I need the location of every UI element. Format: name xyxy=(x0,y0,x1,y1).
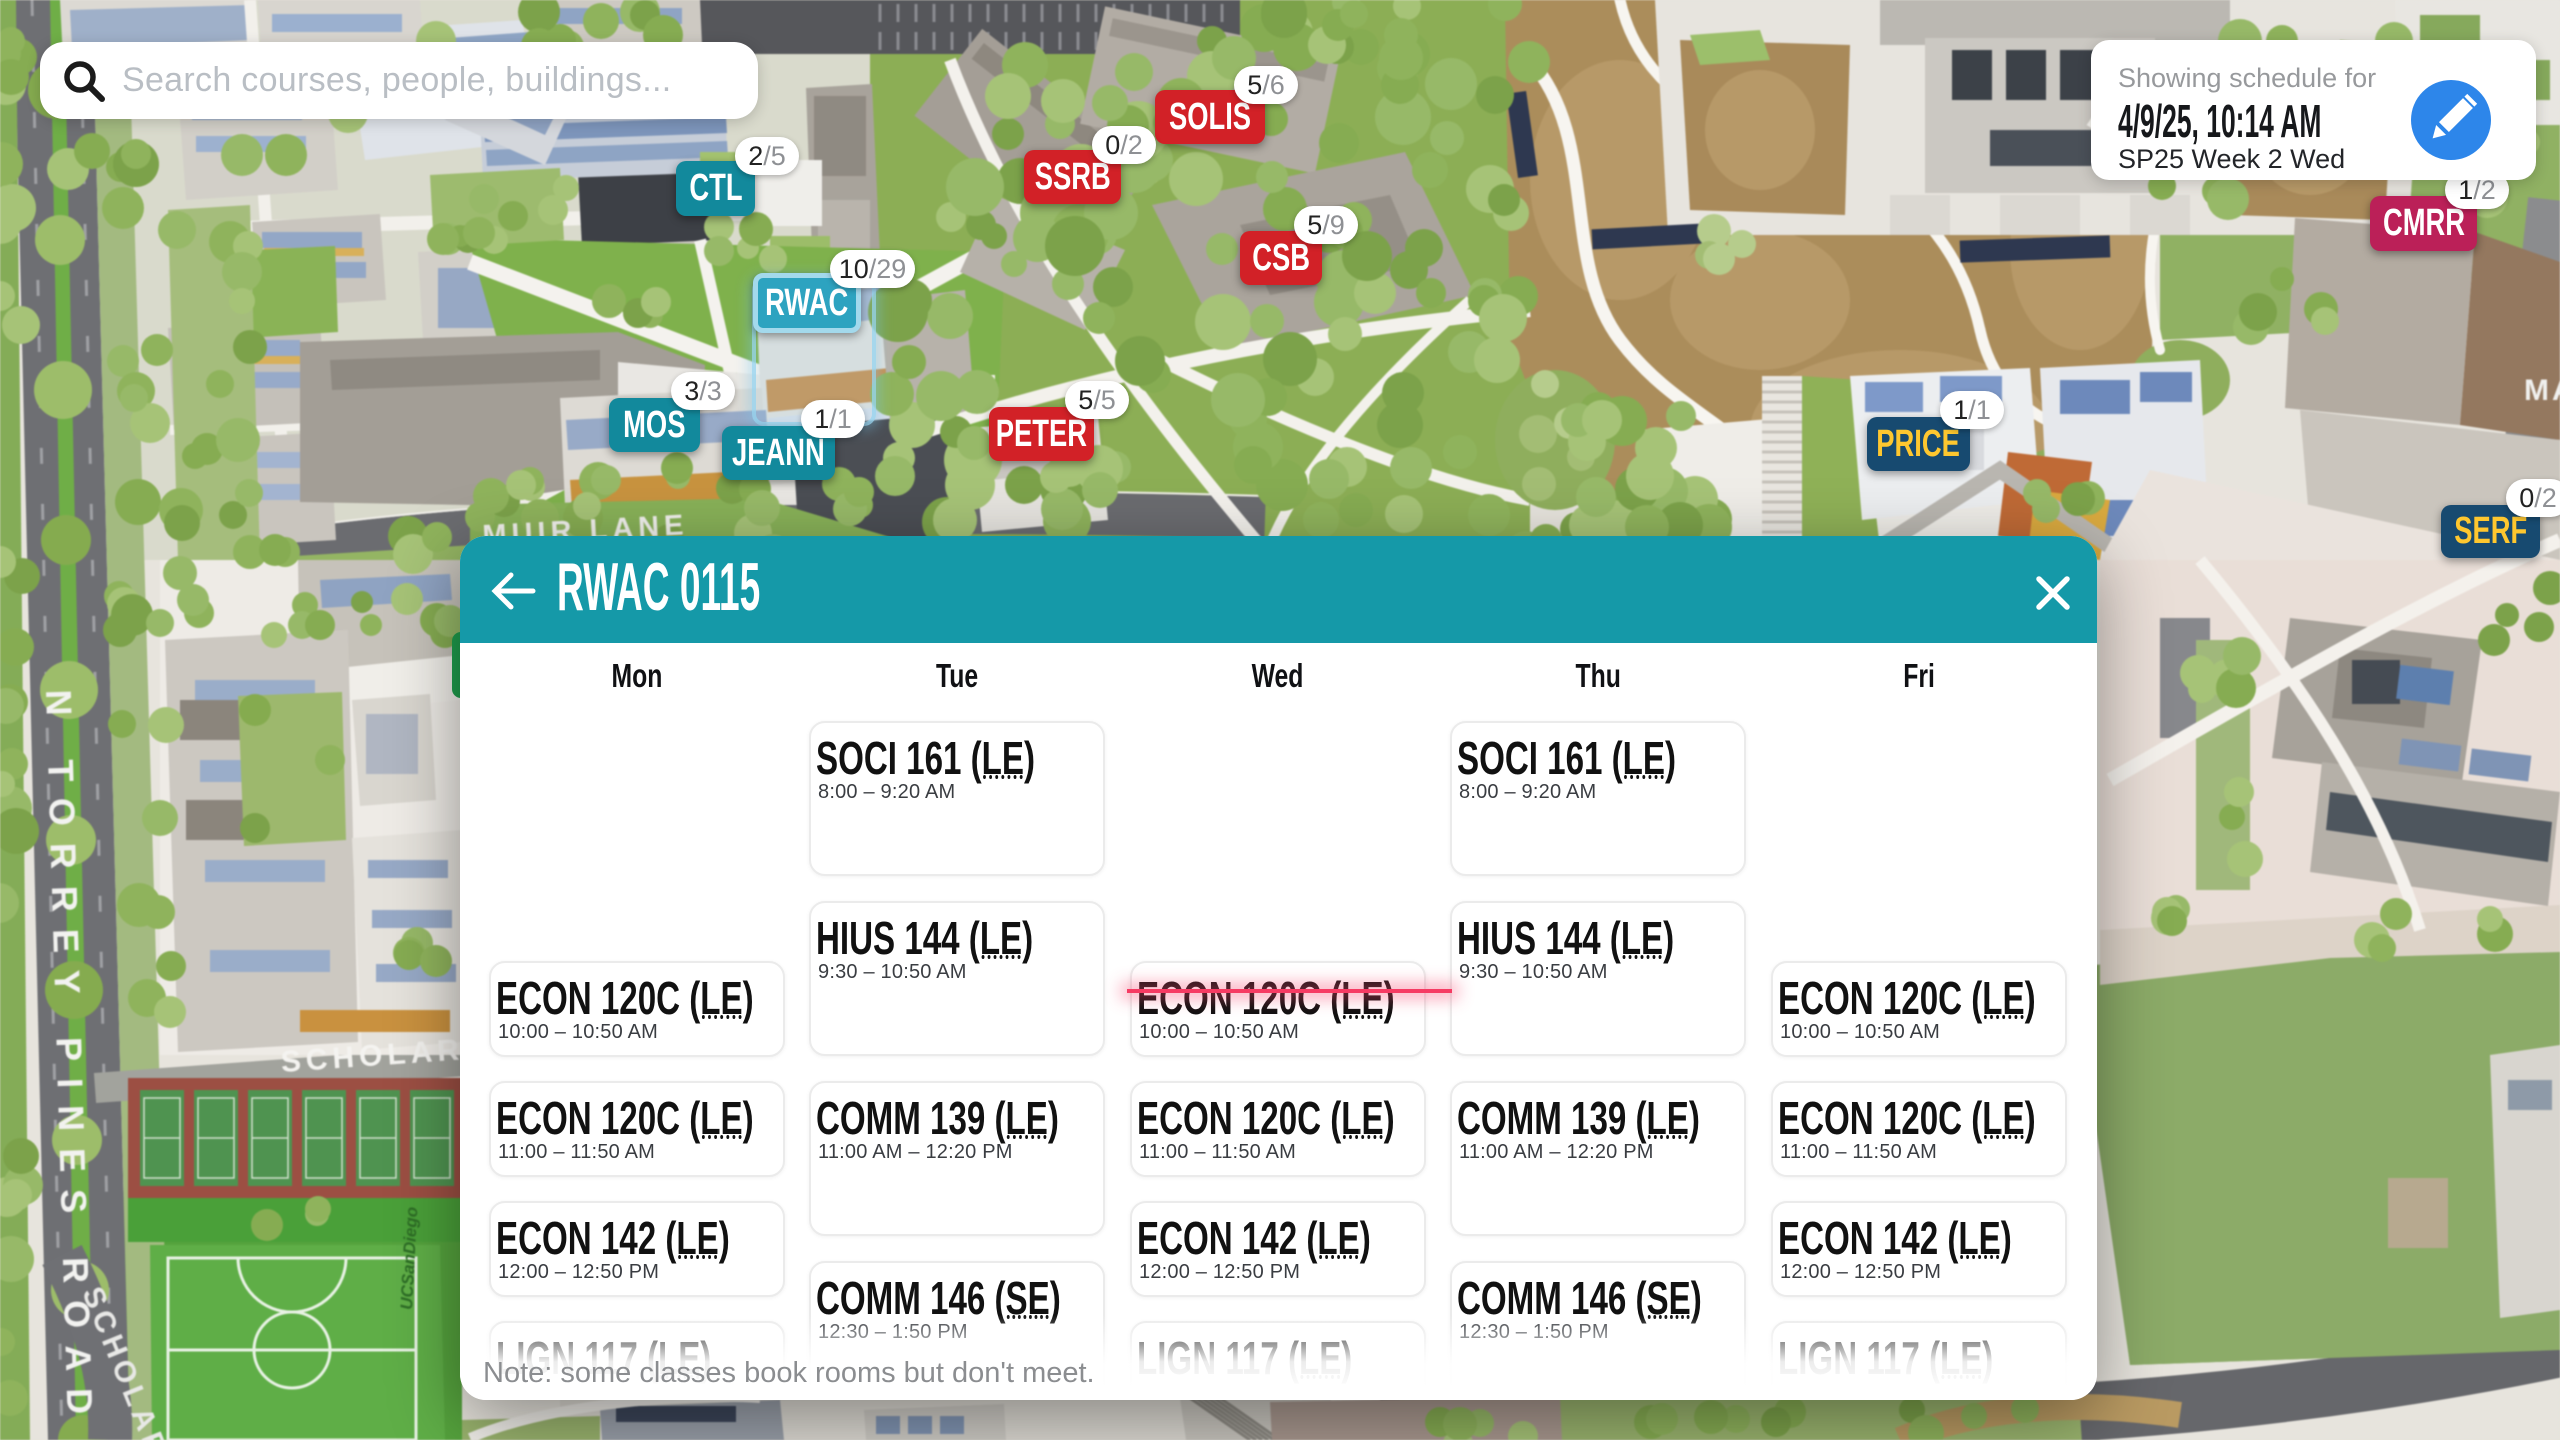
svg-text:MA: MA xyxy=(2524,374,2560,407)
